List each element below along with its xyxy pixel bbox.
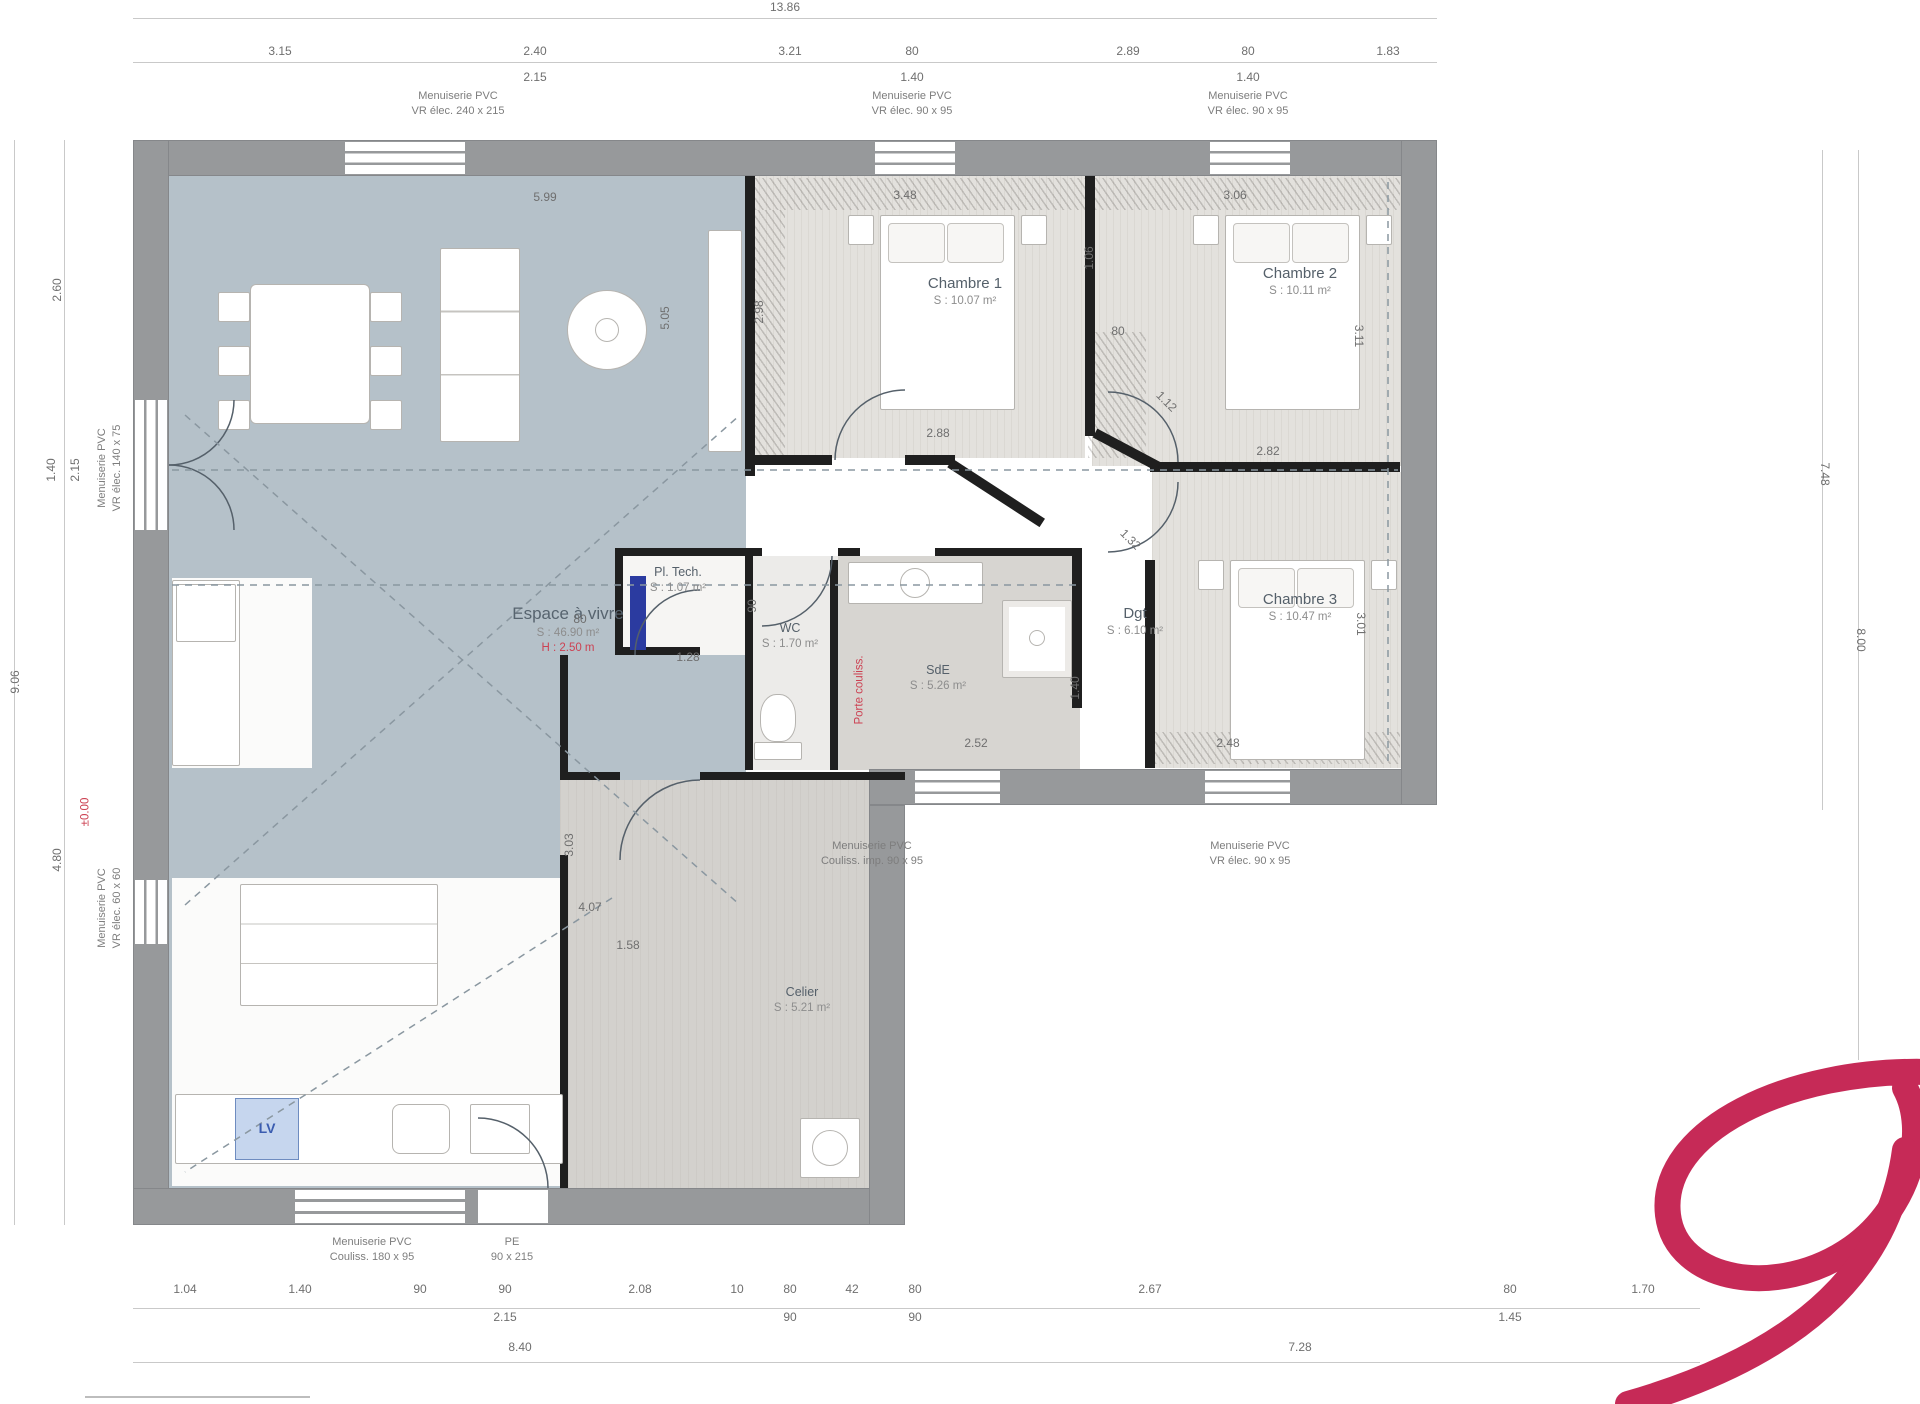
chair (370, 400, 402, 430)
nightstand (1021, 215, 1047, 245)
pillow (1233, 223, 1290, 263)
room-area: S : 10.47 m² (1263, 610, 1337, 626)
wall-right (1401, 140, 1437, 805)
dim-label: 8.00 (1852, 628, 1868, 651)
room-name: Celier (774, 984, 830, 1001)
dim-label: 3.15 (268, 44, 291, 60)
dim-label: 2.52 (964, 736, 987, 752)
dim-label: 80 (573, 612, 586, 628)
nightstand (1193, 215, 1219, 245)
dim-label: 10 (730, 1282, 743, 1298)
dim-label: 90 (783, 1310, 796, 1326)
dim-label: 2.48 (1216, 736, 1239, 752)
room-label-cellier: Celier S : 5.21 m² (774, 984, 830, 1016)
dim-label: 80 (908, 1282, 921, 1298)
window-label: PE 90 x 215 (491, 1235, 533, 1265)
chair (370, 292, 402, 322)
window-label: Menuiserie PVC VR élec. 60 x 60 (95, 868, 125, 949)
dim-label: 4.07 (578, 900, 601, 916)
dim-label: 2.60 (50, 278, 66, 301)
dim-line-left-segments (64, 140, 65, 1225)
tv-unit (708, 230, 742, 452)
nightstand (848, 215, 874, 245)
room-label-pltech: Pl. Tech. S : 1.07 m² (650, 564, 706, 596)
partition-diagonal (947, 459, 1045, 527)
entry-door-gap (478, 1190, 548, 1223)
dim-label: 2.15 (493, 1310, 516, 1326)
dim-label: 2.15 (523, 70, 546, 86)
partition (745, 548, 753, 770)
partition (745, 455, 832, 465)
room-label-sde: SdE S : 5.26 m² (910, 662, 966, 694)
window-label: Menuiserie PVC Couliss. imp. 90 x 95 (821, 839, 923, 869)
chair (370, 346, 402, 376)
partition (615, 548, 745, 556)
window-label: Menuiserie PVC VR élec. 90 x 95 (1208, 89, 1289, 119)
room-name: Chambre 2 (1263, 264, 1337, 284)
dim-label: 8.40 (508, 1340, 531, 1356)
partition (745, 176, 755, 476)
dim-label: 90 (413, 1282, 426, 1298)
room-area: S : 1.70 m² (762, 637, 818, 653)
dim-label: 9.06 (8, 670, 24, 693)
dim-label: 1.45 (1498, 1310, 1521, 1326)
dim-line-bottom-total-right (905, 1362, 1700, 1363)
builder-logo-stroke (1628, 1072, 1920, 1404)
room-name: Espace à vivre (512, 603, 624, 626)
washing-machine-drum (812, 1130, 848, 1166)
tech-cabinet (630, 576, 646, 650)
room-area: S : 5.21 m² (774, 1001, 830, 1017)
partition (830, 560, 838, 770)
hatch-band (755, 178, 1085, 210)
dim-label: 90 (745, 599, 761, 612)
dim-label: 3.48 (893, 188, 916, 204)
dim-label: 1.40 (1068, 676, 1084, 699)
window-left-living (135, 400, 167, 530)
dim-line-top-total (133, 18, 1437, 19)
room-label-chambre3: Chambre 3 S : 10.47 m² (1263, 590, 1337, 626)
dim-label: 3.11 (1350, 325, 1366, 347)
kitchen-island (240, 884, 438, 1006)
room-name: Chambre 3 (1263, 590, 1337, 610)
hatch-band (755, 210, 785, 458)
dim-label: 1.40 (900, 70, 923, 86)
room-name: Chambre 1 (928, 274, 1002, 294)
corner-rule (85, 1396, 310, 1398)
room-area: S : 5.26 m² (910, 679, 966, 695)
room-name: SdE (910, 662, 966, 679)
room-area: S : 1.07 m² (650, 581, 706, 597)
window-label: Menuiserie PVC VR élec. 240 x 215 (412, 89, 505, 119)
dim-line-top-segments (133, 62, 1437, 63)
room-area: S : 6.10 m² (1107, 624, 1163, 640)
window-label: Menuiserie PVC VR élec. 90 x 95 (1210, 839, 1291, 869)
fridge (176, 584, 236, 642)
kitchen-hob (470, 1104, 530, 1154)
room-name: Dgt (1107, 604, 1163, 624)
kitchen-sink (392, 1104, 450, 1154)
dim-label: 2.40 (523, 44, 546, 60)
note-label: ±0.00 (79, 798, 94, 827)
dim-label: 2.15 (68, 458, 84, 481)
chair (218, 346, 250, 376)
partition (560, 655, 568, 775)
dim-line-bottom-total-left (133, 1362, 905, 1363)
dim-label: 4.80 (50, 848, 66, 871)
dim-label: 3.03 (562, 833, 578, 856)
room-area: S : 10.11 m² (1263, 284, 1337, 300)
room-note: H : 2.50 m (512, 641, 624, 657)
room-label-wc: WC S : 1.70 m² (762, 620, 818, 652)
dim-label: 7.28 (1288, 1340, 1311, 1356)
window-label: Menuiserie PVC Couliss. 180 x 95 (330, 1235, 414, 1265)
room-area: S : 46.90 m² (512, 626, 624, 642)
partition (1150, 462, 1400, 472)
partition (1145, 560, 1155, 768)
dim-label: 1.40 (288, 1282, 311, 1298)
hatch-band (1095, 178, 1400, 210)
dim-label: 3.01 (1352, 612, 1368, 635)
round-table-center (595, 318, 619, 342)
window-top-left (345, 142, 465, 174)
window-label: Menuiserie PVC VR élec. 90 x 95 (872, 89, 953, 119)
window-left-kitchen (135, 880, 167, 944)
dim-label: 1.04 (173, 1282, 196, 1298)
pillow (947, 223, 1004, 263)
partition (560, 772, 620, 780)
sideboard (440, 248, 520, 442)
window-top-right (1210, 142, 1290, 174)
dim-label: 42 (845, 1282, 858, 1298)
dim-label: 1.58 (616, 938, 639, 954)
shower-drain (1029, 630, 1045, 646)
room-name: WC (762, 620, 818, 637)
dim-label: 2.88 (926, 426, 949, 442)
partition (838, 548, 860, 556)
window-label: Menuiserie PVC VR élec. 140 x 75 (95, 425, 125, 512)
room-label-chambre1: Chambre 1 S : 10.07 m² (928, 274, 1002, 310)
partition (1085, 176, 1095, 436)
dim-label: 1.28 (676, 650, 699, 666)
dim-label: 5.05 (658, 306, 674, 329)
window-bottom-left (295, 1190, 465, 1223)
room-name: Pl. Tech. (650, 564, 706, 581)
dim-label: 80 (1503, 1282, 1516, 1298)
dim-label: 3.06 (1223, 188, 1246, 204)
dim-label: 90 (498, 1282, 511, 1298)
wall-left (133, 140, 169, 1225)
appliance-label: LV (259, 1119, 276, 1137)
dim-label: 80 (1111, 324, 1124, 340)
toilet-bowl (760, 694, 796, 742)
dim-label: 2.67 (1138, 1282, 1161, 1298)
dim-label: 2.08 (628, 1282, 651, 1298)
window-bottom-chambre3 (1205, 771, 1290, 803)
dim-label: 5.99 (533, 190, 556, 206)
dim-label: 13.86 (770, 0, 800, 16)
dim-label: 1.40 (44, 458, 60, 481)
dim-label: 1.40 (1236, 70, 1259, 86)
chair (218, 292, 250, 322)
dim-label: 80 (1241, 44, 1254, 60)
nightstand (1198, 560, 1224, 590)
partition (700, 772, 905, 780)
partition (905, 455, 955, 465)
dim-label: 1.06 (1082, 246, 1098, 269)
washbasin-bowl (900, 568, 930, 598)
dim-line-bottom-segments (133, 1308, 1700, 1309)
room-label-living: Espace à vivre S : 46.90 m² H : 2.50 m (512, 603, 624, 657)
dim-label: 3.21 (778, 44, 801, 60)
dim-label: 80 (783, 1282, 796, 1298)
pillow (888, 223, 945, 263)
room-label-chambre2: Chambre 2 S : 10.11 m² (1263, 264, 1337, 300)
partition (935, 548, 1080, 556)
dim-label: 90 (908, 1310, 921, 1326)
floor-plan: Espace à vivre S : 46.90 m² H : 2.50 m C… (0, 0, 1920, 1404)
nightstand (1366, 215, 1392, 245)
dim-label: 2.89 (1116, 44, 1139, 60)
room-wc-floor (745, 556, 838, 770)
room-area: S : 10.07 m² (928, 294, 1002, 310)
dim-label: 1.83 (1376, 44, 1399, 60)
pillow (1292, 223, 1349, 263)
dim-label: 1.32 (1116, 526, 1144, 554)
chair (218, 400, 250, 430)
dim-line-right-outer (1858, 150, 1859, 1060)
dim-label: 80 (905, 44, 918, 60)
note-label: Porte couliss. (853, 655, 868, 724)
window-bottom-middle (915, 771, 1000, 803)
window-top-middle (875, 142, 955, 174)
dim-label: 2.82 (1256, 444, 1279, 460)
nightstand (1371, 560, 1397, 590)
dim-label: 2.98 (752, 300, 768, 323)
dim-label: 1.70 (1631, 1282, 1654, 1298)
toilet-tank (754, 742, 802, 760)
dining-table (250, 284, 370, 424)
room-label-dgt: Dgt S : 6.10 m² (1107, 604, 1163, 640)
dim-label: 7.48 (1816, 462, 1832, 485)
